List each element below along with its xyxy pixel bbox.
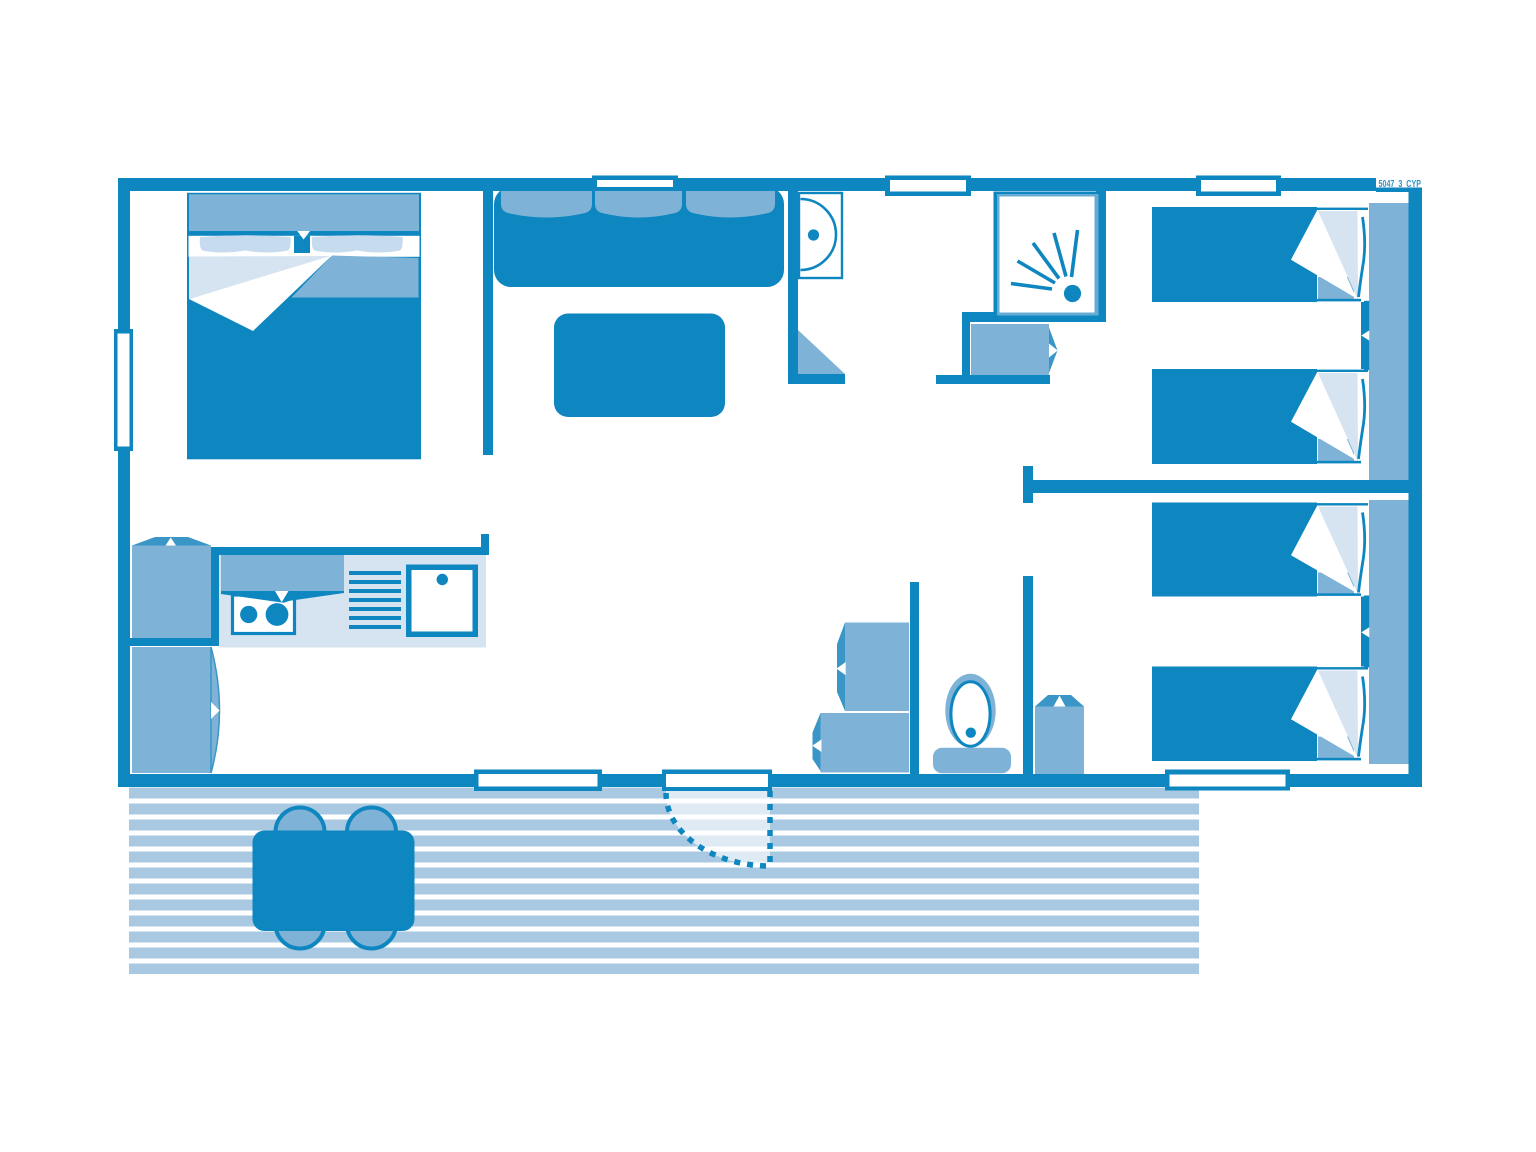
svg-text:5047_3_CYP: 5047_3_CYP xyxy=(1379,178,1422,190)
